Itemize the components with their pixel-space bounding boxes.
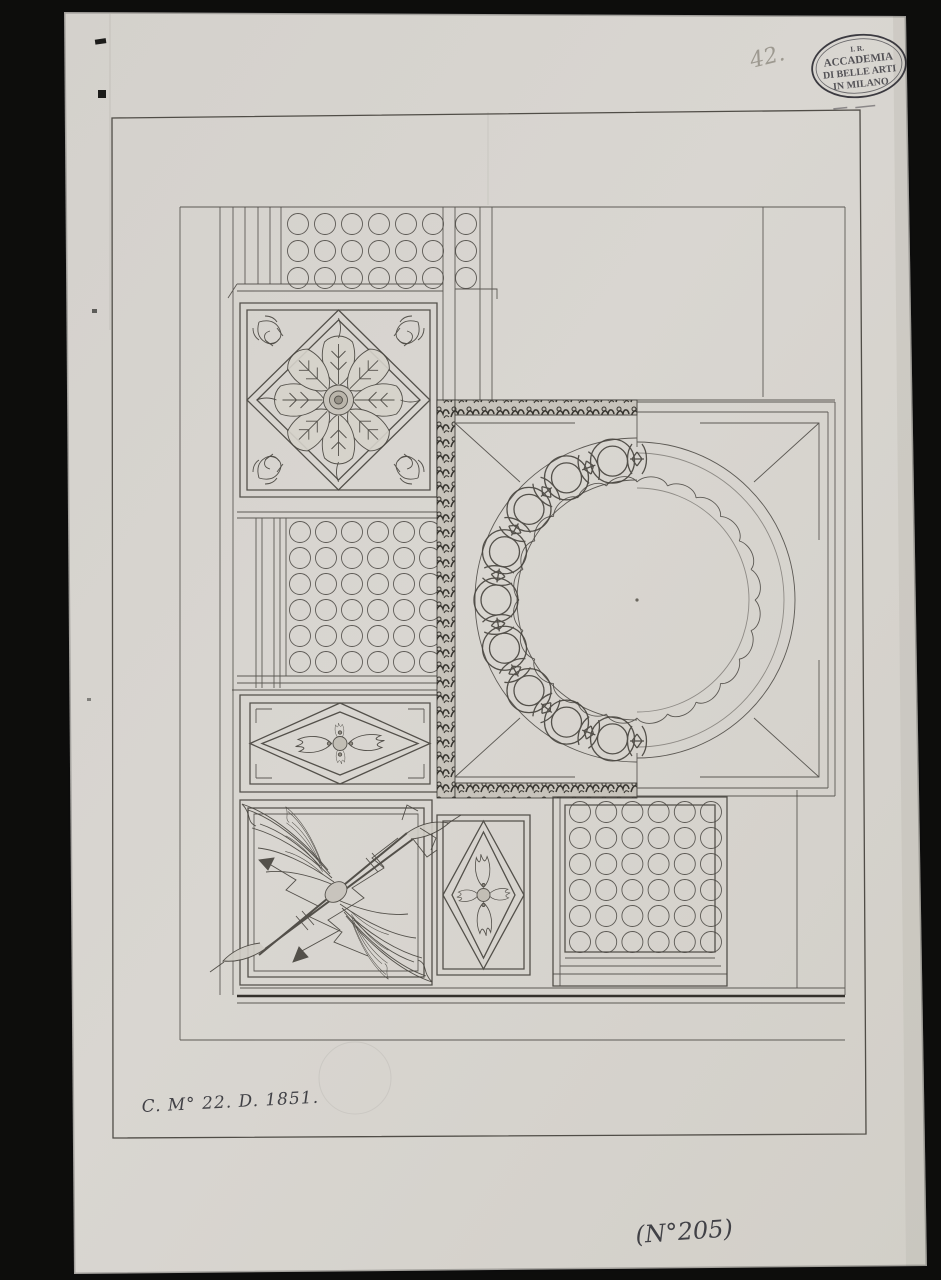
foliage-border-top <box>455 400 637 415</box>
photo-background: I. R. ACCADEMIA DI BELLE ARTI IN MILANO … <box>0 0 941 1280</box>
foliage-border-bottom <box>455 783 637 798</box>
archival-drawing-photo: I. R. ACCADEMIA DI BELLE ARTI IN MILANO … <box>0 0 941 1280</box>
stamp-line-1: I. R. <box>850 43 865 53</box>
center-mark <box>635 598 638 601</box>
foliage-border-left <box>437 400 455 798</box>
paper-sheet <box>64 12 927 1274</box>
